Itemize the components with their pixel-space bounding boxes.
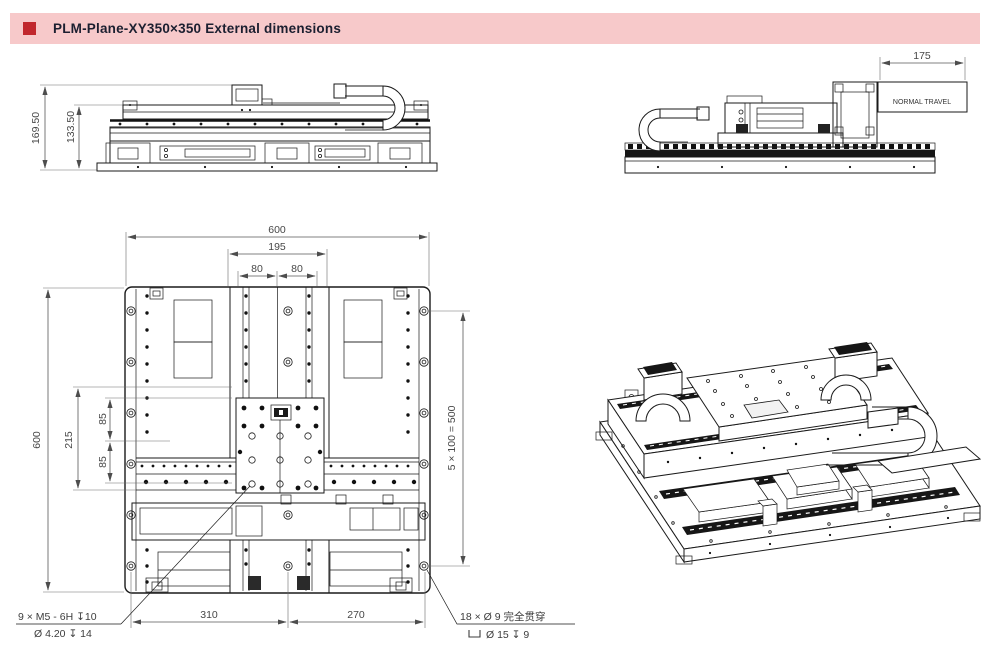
dim-pitch-left: 80 (251, 263, 263, 275)
x-carriage (132, 503, 425, 540)
base-plate (625, 157, 935, 173)
motor-block (833, 82, 877, 147)
center-table-plate (236, 398, 324, 493)
tapped-note-line1: 9 × M5 - 6H ↧10 (18, 611, 97, 623)
dim-width-overall: 600 (268, 224, 286, 236)
carriage-assembly (718, 96, 843, 147)
dim-mount-holes: 5 × 100 = 500 (446, 405, 458, 470)
dim-travel: 175 (913, 50, 931, 62)
side-view-right: 175 NORMAL TRAVEL (625, 50, 967, 173)
dim-platform-width: 195 (268, 241, 286, 253)
dim-table-height: 133.50 (65, 111, 77, 143)
base-plate (97, 163, 437, 171)
iso-view (596, 342, 980, 564)
tapped-note-line2: Ø 4.20 ↧ 14 (34, 628, 92, 640)
travel-box (878, 82, 967, 112)
dim-pitch-lower: 85 (97, 456, 109, 468)
plan-view: 600 195 80 80 600 215 85 85 5 × 100 = 50… (16, 224, 575, 641)
counterbore-icon (469, 630, 480, 637)
cable-carrier (334, 84, 405, 130)
technical-drawing: 169.50 133.50 (0, 0, 992, 663)
dim-bottom-right: 270 (347, 609, 365, 621)
travel-box-label: NORMAL TRAVEL (893, 99, 951, 106)
dim-total-height: 169.50 (30, 112, 42, 144)
through-hole-note: 18 × Ø 9 完全贯穿 Ø 15 ↧ 9 (427, 570, 575, 641)
motor-block (232, 85, 272, 111)
dim-pitch-right: 80 (291, 263, 303, 275)
dim-pitch-upper: 85 (97, 413, 109, 425)
through-note-line2: Ø 15 ↧ 9 (486, 629, 529, 641)
dim-carriage: 215 (63, 431, 75, 449)
side-view-left: 169.50 133.50 (30, 84, 437, 171)
dim-bottom-left: 310 (200, 609, 218, 621)
dim-height-overall: 600 (31, 431, 43, 449)
through-note-line1: 18 × Ø 9 完全贯穿 (460, 610, 546, 623)
